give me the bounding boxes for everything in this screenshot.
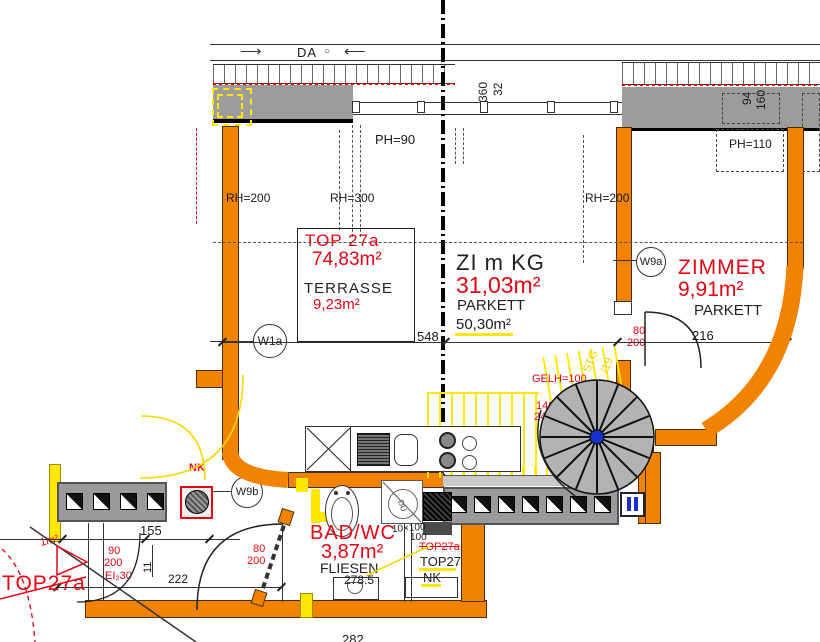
red-triangle-marker <box>57 546 87 575</box>
red-dashed-curve <box>2 549 35 642</box>
bath-door-leaf <box>259 516 287 600</box>
bath-door-tip-top <box>278 508 294 525</box>
red-strike-line <box>0 577 86 599</box>
linework-overlay <box>0 0 820 642</box>
hall-door-arc <box>77 533 140 602</box>
bath-door-tip-bottom <box>251 589 267 606</box>
zimmer-door-arc <box>645 312 701 368</box>
wall-left-curve <box>230 452 288 480</box>
yellow-door-arc-2 <box>141 416 205 480</box>
spiral-staircase <box>540 380 654 494</box>
shower-diagonal <box>383 482 421 522</box>
dishwasher-cross <box>307 428 350 470</box>
floor-plan: ⟶ DA ○ ⟵ 360 32 94 160 PH=110 PH=90 <box>0 0 820 642</box>
wall-right-curve <box>706 266 795 430</box>
stair-center-post <box>590 430 604 444</box>
yellow-leader-line <box>366 546 430 576</box>
